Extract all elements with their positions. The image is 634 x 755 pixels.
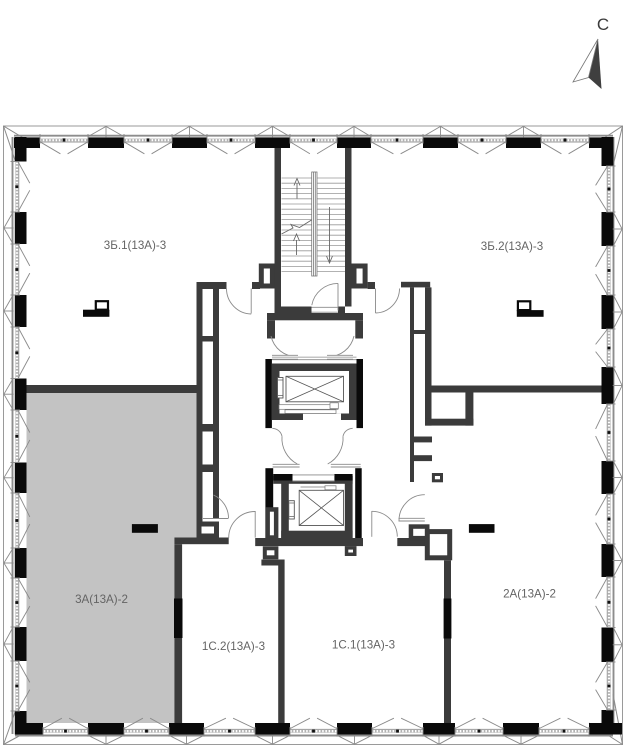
svg-text:С: С [597,15,609,34]
svg-text:3А(13А)-2: 3А(13А)-2 [75,593,128,606]
svg-text:3Б.1(13А)-3: 3Б.1(13А)-3 [104,239,166,252]
svg-text:1С.1(13А)-3: 1С.1(13А)-3 [332,639,395,652]
svg-text:2А(13А)-2: 2А(13А)-2 [503,588,556,601]
svg-text:1С.2(13А)-3: 1С.2(13А)-3 [202,640,265,653]
svg-text:3Б.2(13А)-3: 3Б.2(13А)-3 [481,240,543,253]
